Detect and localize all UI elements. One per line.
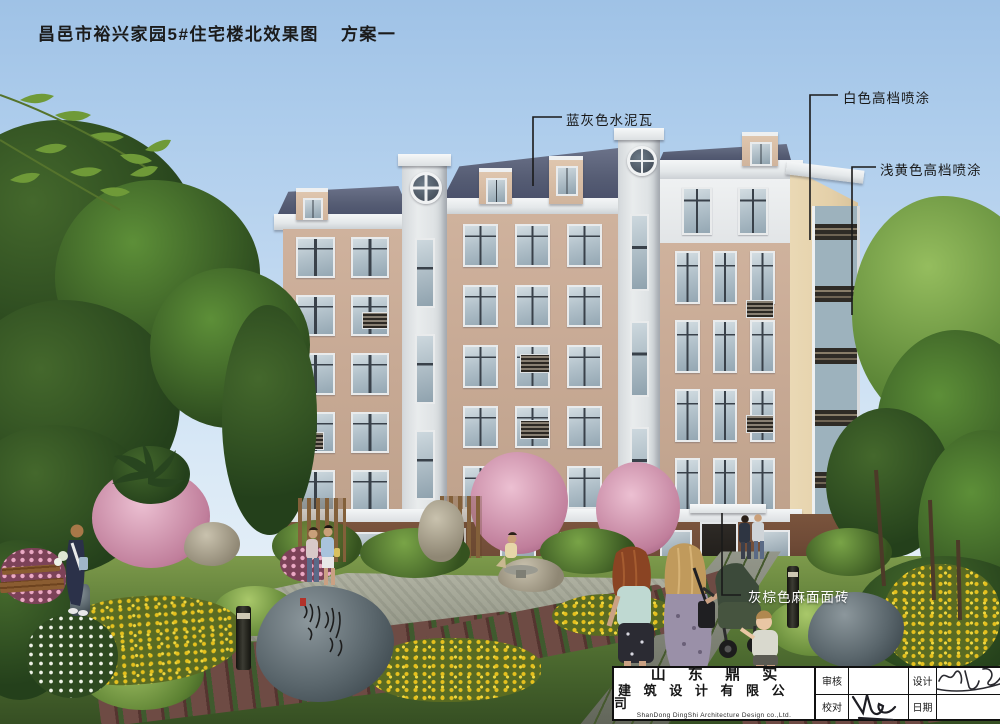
field-review-value [848,668,908,694]
title-block: 山 东 鼎 实 建 筑 设 计 有 限 公 司 ShanDong DingShi… [612,666,1000,721]
sheet-title-scheme: 方案一 [341,25,397,44]
annotation-yellow-coating: 浅黄色高档喷涂 [880,159,982,179]
rendering-sheet: 蓝灰色水泥瓦 白色高档喷涂 浅黄色高档喷涂 灰棕色麻面面砖 昌邑市裕兴家园5#住… [0,0,1000,724]
field-proof-label: 校对 [816,694,848,720]
company-name-line2: 建 筑 设 计 有 限 公 司 [614,684,814,711]
company-name-english: ShanDong DingShi Architecture Design co.… [637,713,792,720]
sheet-title: 昌邑市裕兴家园5#住宅楼北效果图方案一 [38,20,396,45]
design-signature [935,665,1000,695]
proof-signature [849,691,911,723]
company-name-line1: 山 东 鼎 实 [642,667,787,683]
field-date-value [936,694,1000,720]
company-cell: 山 东 鼎 实 建 筑 设 计 有 限 公 司 ShanDong DingShi… [614,668,816,719]
field-review-label: 审核 [816,668,848,694]
field-proof-value [848,694,908,720]
sheet-title-main: 昌邑市裕兴家园5#住宅楼北效果图 [38,25,319,44]
annotation-roof-tile: 蓝灰色水泥瓦 [566,109,653,129]
leader-lines [0,0,1000,724]
field-date-label: 日期 [908,694,936,720]
title-block-grid: 审核 设计 校对 日期 [816,668,1000,719]
field-design-label: 设计 [908,668,936,694]
annotation-white-coating: 白色高档喷涂 [843,87,930,107]
annotation-base-tile: 灰棕色麻面面砖 [748,586,850,606]
field-design-value [936,668,1000,694]
